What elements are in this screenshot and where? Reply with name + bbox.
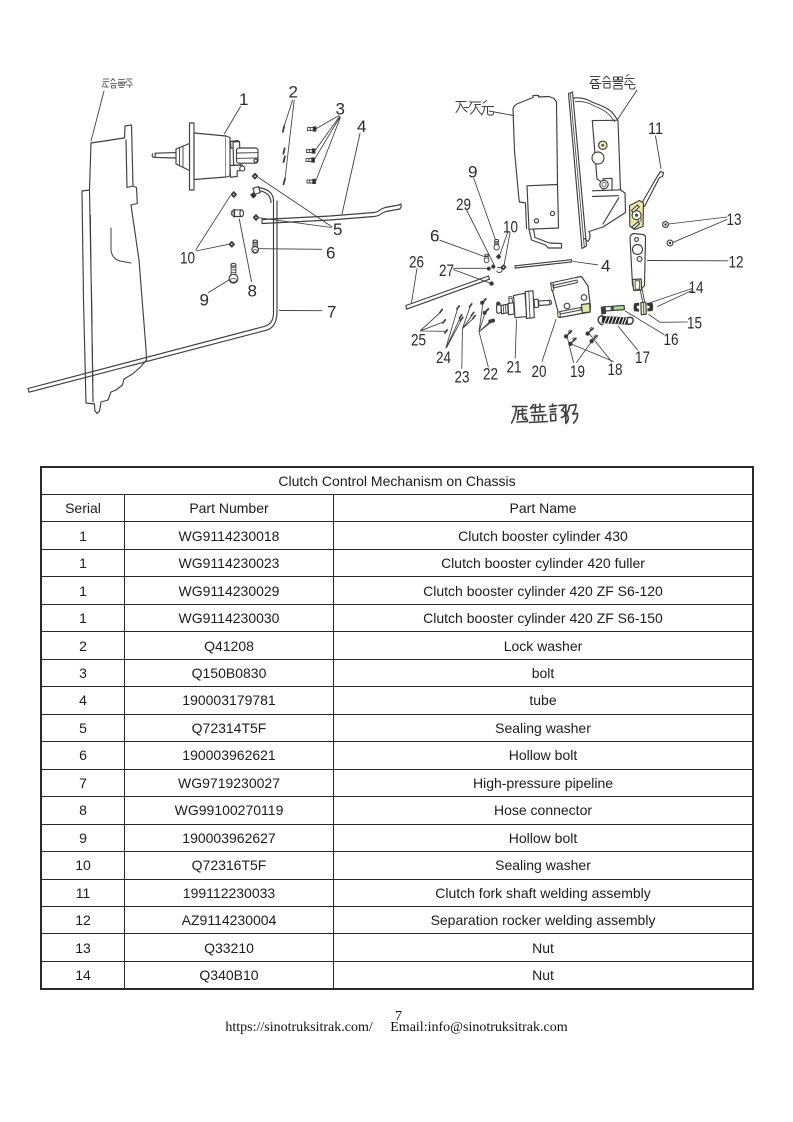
svg-text:4: 4 <box>601 257 610 276</box>
svg-text:12: 12 <box>729 253 744 272</box>
svg-text:6: 6 <box>326 244 335 263</box>
svg-text:9: 9 <box>468 163 477 182</box>
svg-text:11: 11 <box>648 119 663 138</box>
svg-text:15: 15 <box>687 314 702 333</box>
svg-text:20: 20 <box>532 362 547 381</box>
svg-text:27: 27 <box>439 261 454 280</box>
svg-text:4: 4 <box>357 117 366 136</box>
svg-text:23: 23 <box>455 368 470 387</box>
svg-text:26: 26 <box>409 253 424 272</box>
svg-text:7: 7 <box>327 303 336 322</box>
svg-text:5: 5 <box>333 220 342 239</box>
svg-text:25: 25 <box>411 331 426 350</box>
svg-text:13: 13 <box>727 210 742 229</box>
svg-text:18: 18 <box>608 360 623 379</box>
svg-text:8: 8 <box>248 282 257 301</box>
svg-text:17: 17 <box>635 348 650 367</box>
svg-text:3: 3 <box>336 100 345 119</box>
svg-text:16: 16 <box>664 330 679 349</box>
svg-text:14: 14 <box>689 278 704 297</box>
svg-text:24: 24 <box>436 348 451 367</box>
svg-text:10: 10 <box>180 249 195 268</box>
svg-text:21: 21 <box>507 358 522 377</box>
svg-text:22: 22 <box>483 365 498 384</box>
svg-text:10: 10 <box>503 218 518 237</box>
svg-text:6: 6 <box>430 227 439 246</box>
svg-text:9: 9 <box>200 291 209 310</box>
svg-text:1: 1 <box>239 90 248 109</box>
svg-text:29: 29 <box>456 195 471 214</box>
svg-text:19: 19 <box>570 362 585 381</box>
svg-text:2: 2 <box>289 83 298 102</box>
